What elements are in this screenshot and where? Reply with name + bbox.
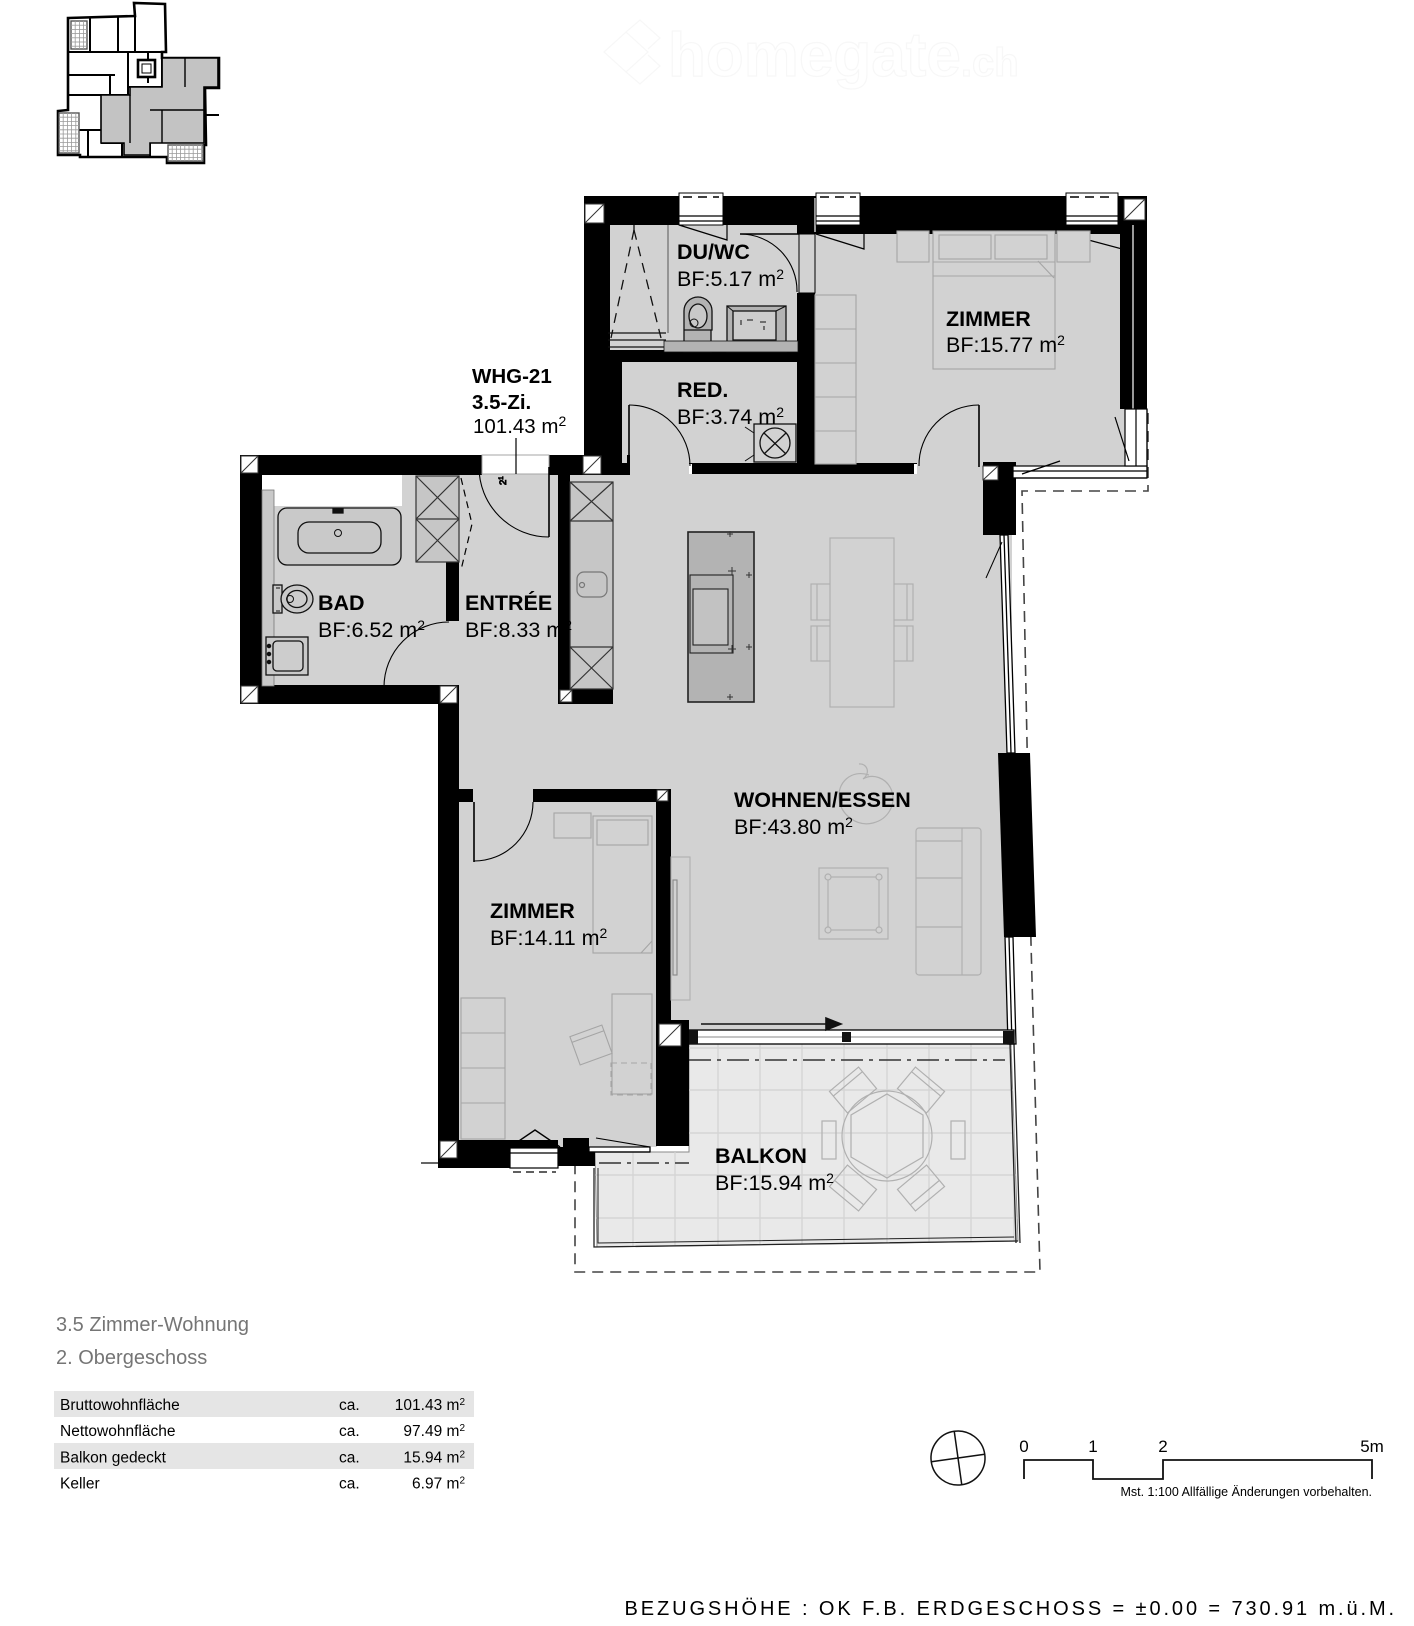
svg-text:Bruttowohnfläche: Bruttowohnfläche: [60, 1397, 180, 1414]
svg-text:5m: 5m: [1360, 1437, 1384, 1456]
svg-text:BEZUGSHÖHE : OK F.B. ERDGESCHO: BEZUGSHÖHE : OK F.B. ERDGESCHOSS = ±0.00…: [625, 1598, 1397, 1620]
svg-text:101.43 m2: 101.43 m2: [473, 413, 566, 438]
svg-text:Mst. 1:100 Allfällige Änderung: Mst. 1:100 Allfällige Änderungen vorbeha…: [1120, 1485, 1372, 1499]
svg-text:WHG-21: WHG-21: [472, 365, 552, 388]
svg-text:0: 0: [1019, 1437, 1028, 1456]
svg-text:6.97 m2: 6.97 m2: [412, 1476, 465, 1493]
svg-text:homegate.ch: homegate.ch: [668, 21, 1019, 90]
svg-text:3.5-Zi.: 3.5-Zi.: [472, 391, 531, 414]
svg-text:ZIMMER: ZIMMER: [490, 899, 575, 923]
svg-text:ca.: ca.: [339, 1449, 360, 1466]
svg-text:1: 1: [1088, 1437, 1097, 1456]
svg-text:BF:6.52 m2: BF:6.52 m2: [318, 617, 425, 642]
svg-text:Balkon gedeckt: Balkon gedeckt: [60, 1449, 167, 1466]
svg-text:WOHNEN/ESSEN: WOHNEN/ESSEN: [734, 788, 911, 812]
svg-text:BF:5.17 m2: BF:5.17 m2: [677, 266, 784, 291]
svg-text:BF:15.94 m2: BF:15.94 m2: [715, 1170, 834, 1195]
svg-text:RED.: RED.: [677, 378, 728, 402]
svg-text:DU/WC: DU/WC: [677, 240, 750, 264]
svg-text:BF:15.77 m2: BF:15.77 m2: [946, 332, 1065, 357]
svg-text:Nettowohnfläche: Nettowohnfläche: [60, 1423, 175, 1440]
svg-text:ENTRÉE: ENTRÉE: [465, 590, 552, 615]
svg-text:ca.: ca.: [339, 1476, 360, 1493]
svg-text:ca.: ca.: [339, 1397, 360, 1414]
svg-text:BF:8.33 m2: BF:8.33 m2: [465, 617, 572, 642]
svg-text:Keller: Keller: [60, 1476, 100, 1493]
svg-text:ca.: ca.: [339, 1423, 360, 1440]
svg-text:3.5 Zimmer-Wohnung: 3.5 Zimmer-Wohnung: [56, 1314, 249, 1336]
svg-text:ZIMMER: ZIMMER: [946, 307, 1031, 331]
svg-text:BAD: BAD: [318, 591, 365, 615]
svg-text:97.49 m2: 97.49 m2: [403, 1423, 465, 1440]
svg-text:101.43 m2: 101.43 m2: [395, 1397, 466, 1414]
svg-text:BALKON: BALKON: [715, 1144, 807, 1168]
svg-text:2. Obergeschoss: 2. Obergeschoss: [56, 1347, 207, 1369]
svg-text:BF:3.74 m2: BF:3.74 m2: [677, 404, 784, 429]
svg-text:BF:14.11 m2: BF:14.11 m2: [490, 925, 608, 950]
svg-text:2: 2: [1158, 1437, 1167, 1456]
svg-text:15.94 m2: 15.94 m2: [403, 1449, 465, 1466]
svg-text:BF:43.80 m2: BF:43.80 m2: [734, 814, 853, 839]
